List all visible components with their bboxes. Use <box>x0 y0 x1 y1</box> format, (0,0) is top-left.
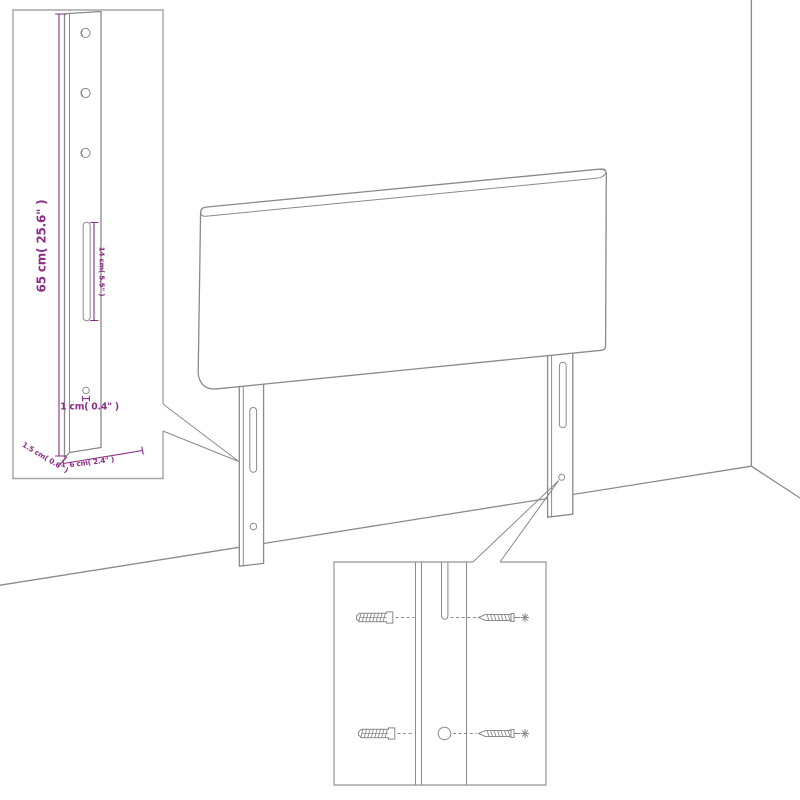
right-leg-hole <box>559 474 565 480</box>
dim-slot-label: 14 cm( 5.5" ) <box>98 247 107 297</box>
strut-bottom-hole <box>83 387 90 394</box>
headboard-leg-left <box>239 381 263 567</box>
left-leg-hole <box>250 523 257 530</box>
dim-height-label: 65 cm( 25.6" ) <box>35 200 49 293</box>
inset-mounting-detail <box>334 562 546 785</box>
wall-plug-top <box>357 612 393 623</box>
leader-lines-mounting-inset <box>473 481 559 562</box>
headboard-assembly-diagram: 65 cm( 25.6" ) 14 cm( 5.5" ) 1 cm( 0.4" … <box>0 0 800 800</box>
strut-slot <box>83 222 90 321</box>
headboard-leg-right <box>548 349 573 517</box>
dim-hole-label: 1 cm( 0.4" ) <box>60 402 119 413</box>
mounting-leg-hole <box>438 727 451 740</box>
floor-line-right <box>751 466 800 498</box>
left-leg-slot <box>250 408 257 473</box>
right-leg-slot <box>559 362 566 428</box>
wall-plug-bottom <box>359 728 395 739</box>
headboard <box>198 169 606 389</box>
diagram-canvas: 65 cm( 25.6" ) 14 cm( 5.5" ) 1 cm( 0.4" … <box>0 0 800 800</box>
leader-lines-strut-inset <box>163 404 239 462</box>
inset-strut-detail: 65 cm( 25.6" ) 14 cm( 5.5" ) 1 cm( 0.4" … <box>13 10 163 479</box>
headboard-panel <box>198 169 606 389</box>
